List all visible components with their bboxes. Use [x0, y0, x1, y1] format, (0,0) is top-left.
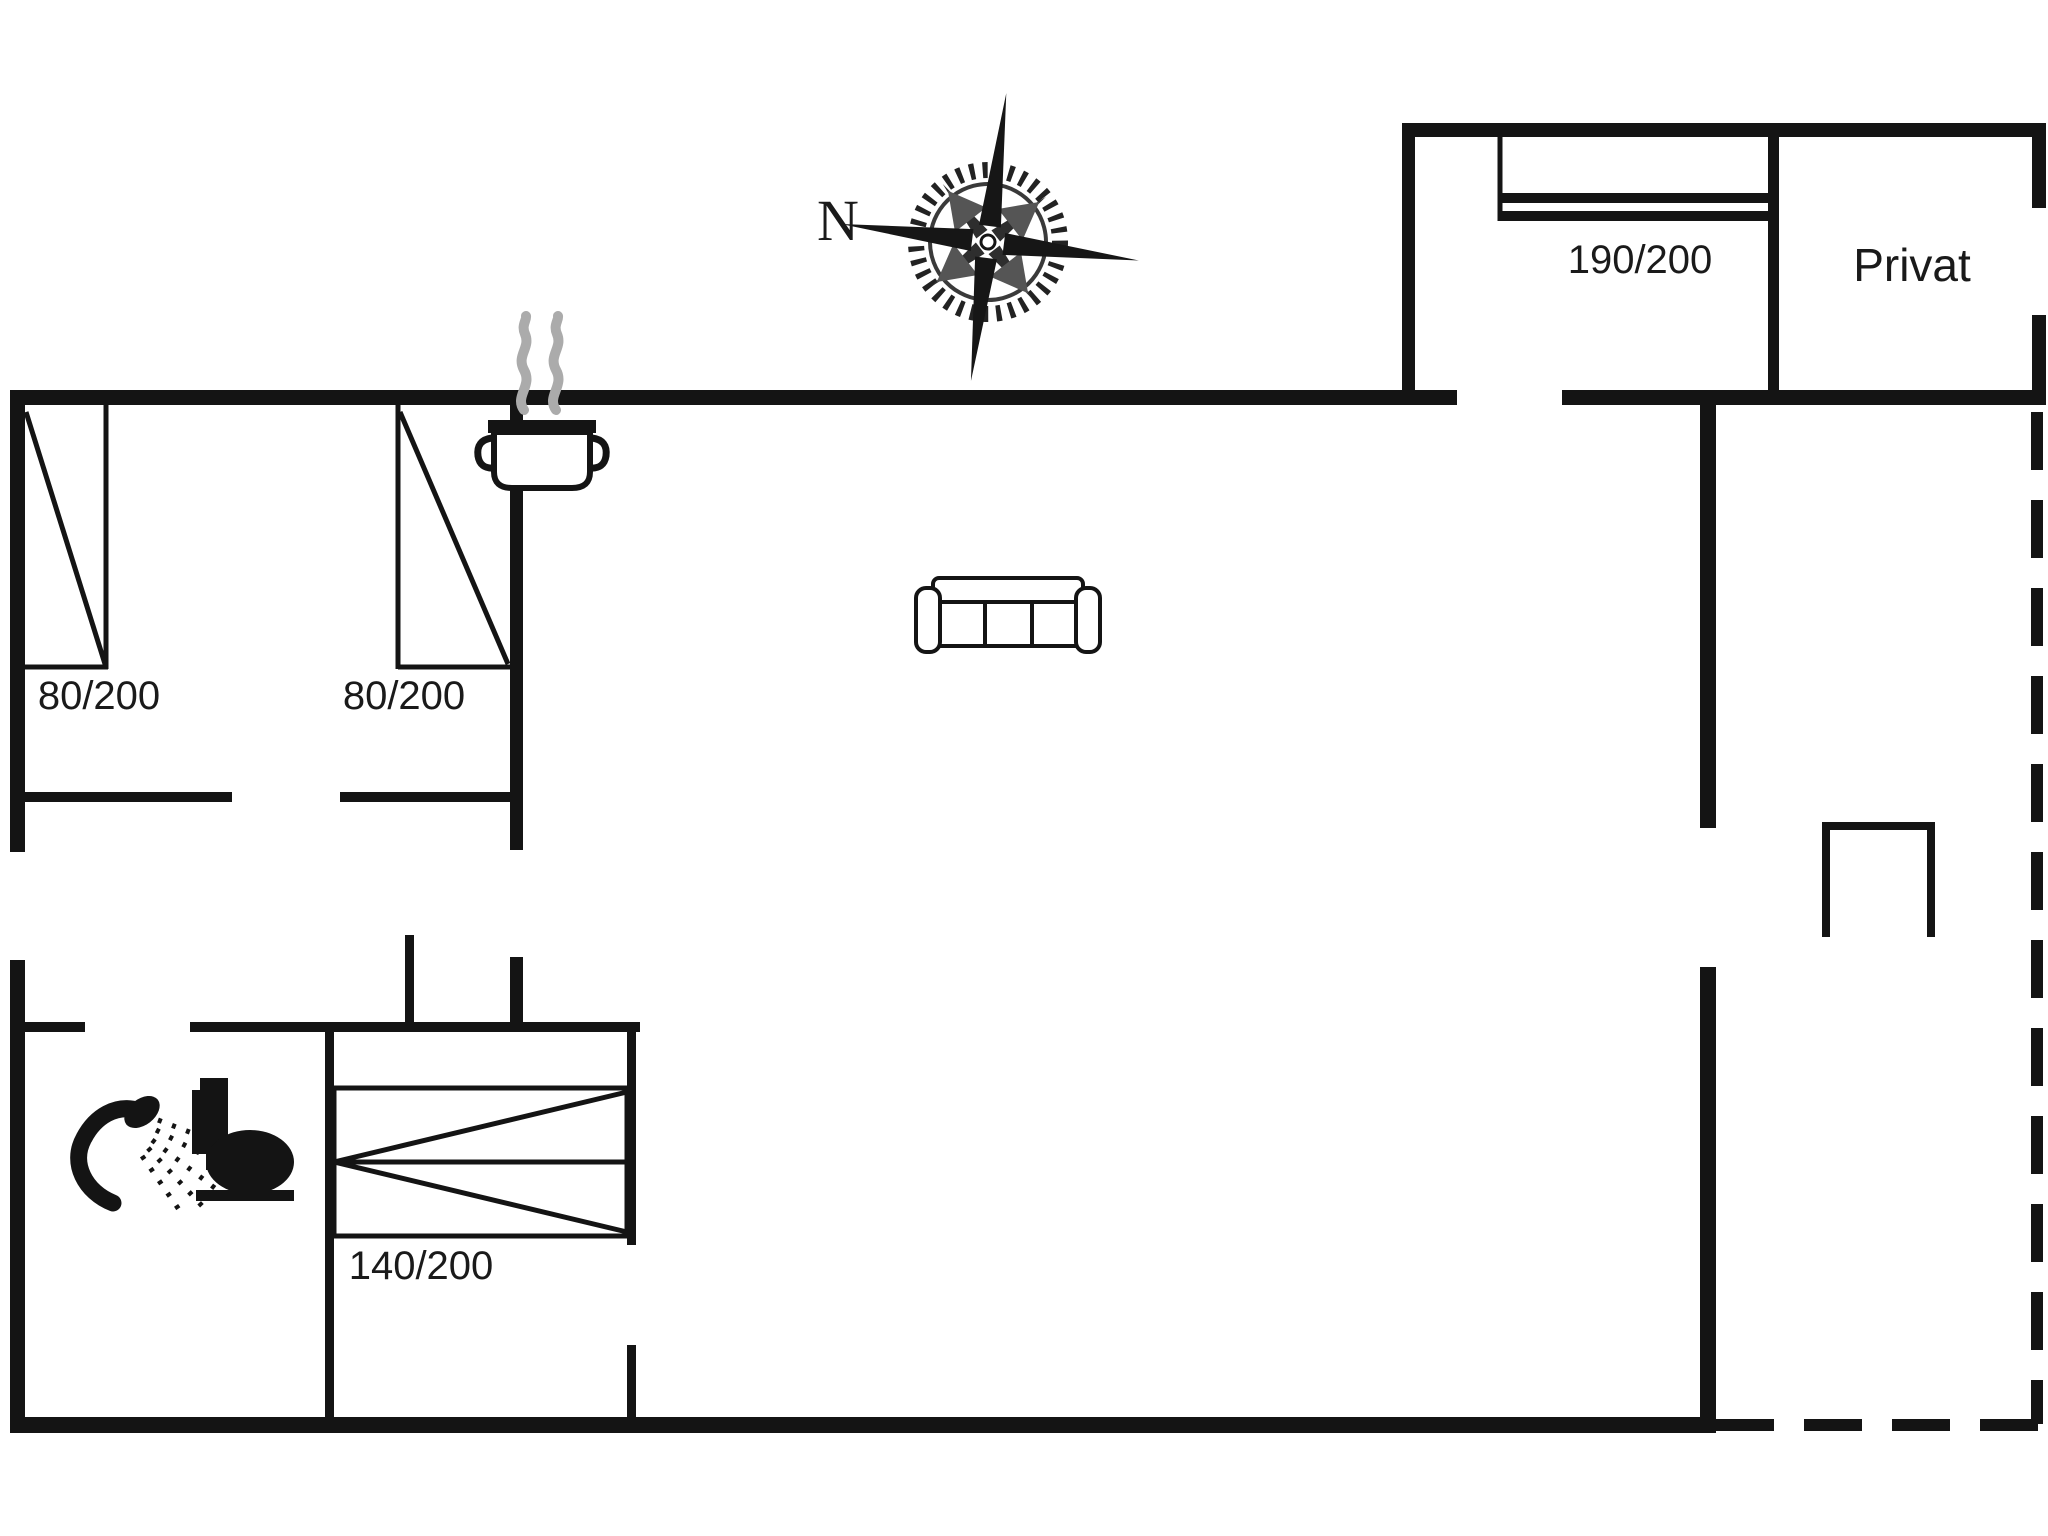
annex-wall-right-lower	[2032, 315, 2046, 405]
pot-rim	[488, 420, 596, 433]
bed-headboard-bar	[1498, 211, 1768, 221]
bed-size-label-140: 140/200	[342, 1246, 500, 1286]
pot-body	[494, 432, 590, 488]
wall-right-lower	[1700, 967, 1716, 1433]
wall-left-upper	[10, 390, 25, 852]
room-label-privat: Privat	[1822, 242, 2002, 288]
toilet-bowl	[206, 1130, 294, 1194]
bedroom-south-wall-right	[340, 792, 523, 802]
compass-hub	[980, 234, 996, 250]
annex-wall-left	[1402, 123, 1415, 405]
bed-headboard-bar	[1498, 193, 1768, 203]
sofa-armrest-right	[1076, 588, 1100, 652]
bed-size-label-80-right: 80/200	[330, 676, 478, 716]
bedroom-south-wall-left	[10, 792, 232, 802]
annex-wall-divider	[1768, 130, 1779, 405]
toilet-icon	[192, 1078, 294, 1201]
sofa-icon	[916, 578, 1100, 652]
compass-rose-icon	[824, 75, 1157, 399]
hall-east-wall-stub	[510, 957, 523, 1022]
toilet-base	[196, 1190, 294, 1201]
bed-size-label-80-left: 80/200	[25, 676, 173, 716]
wall-right-upper	[1700, 390, 1716, 828]
small-bedroom-east-wall-lower	[627, 1345, 636, 1417]
bed-190	[1498, 137, 1768, 221]
bed-diagonal	[26, 412, 105, 664]
floor-plan-page: N 190/200 Privat 80/200 80/200 140/200	[0, 0, 2048, 1536]
sofa-armrest-left	[916, 588, 940, 652]
hall-south-wall-right	[190, 1022, 640, 1032]
wall-top-right-run	[1562, 390, 2046, 405]
floor-plan-drawing	[0, 0, 2048, 1536]
bed-80-left	[25, 405, 108, 669]
bed-size-label-190: 190/200	[1540, 240, 1740, 280]
toilet-lid	[200, 1078, 228, 1092]
wall-top-left-run	[10, 390, 1457, 405]
exterior-walls	[10, 390, 2046, 1433]
compass-north-label: N	[806, 192, 870, 250]
wall-bottom	[10, 1417, 1716, 1433]
annex-wall-top	[1402, 123, 2046, 137]
hall-south-wall-left	[10, 1022, 85, 1032]
sofa-seat	[938, 602, 1078, 646]
bed-140	[334, 1088, 627, 1236]
terrace-step	[1826, 826, 1931, 937]
bed-diagonal	[334, 1162, 627, 1232]
hall-jamb-stub	[405, 935, 414, 1022]
terrace-dashed-boundary	[1716, 412, 2040, 1425]
bed-diagonal	[334, 1092, 627, 1162]
annex-wall-right-upper	[2032, 123, 2046, 208]
pot	[478, 420, 606, 488]
